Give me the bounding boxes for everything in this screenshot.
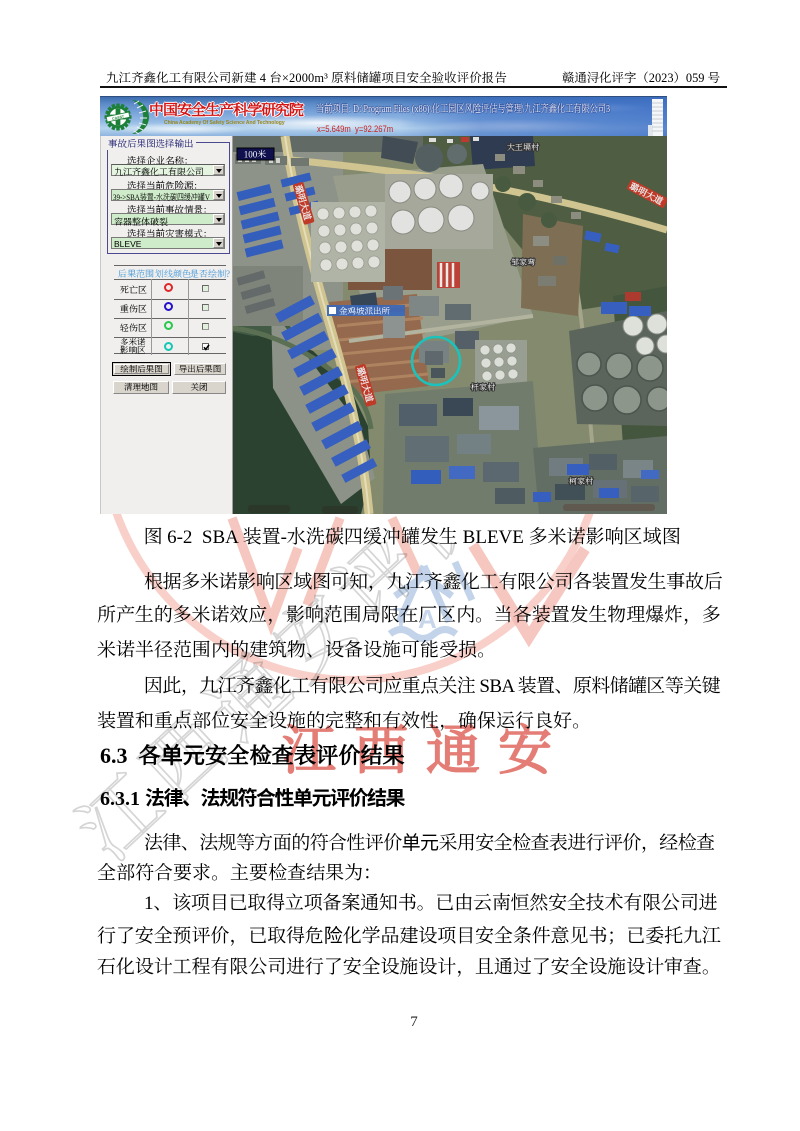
- svg-text:邹家弯: 邹家弯: [511, 257, 535, 268]
- svg-text:柯家村: 柯家村: [569, 476, 594, 487]
- svg-text:大王塥村: 大王塥村: [507, 142, 540, 153]
- svg-text:100米: 100米: [244, 148, 267, 161]
- svg-text:杆家村: 杆家村: [470, 382, 496, 393]
- svg-text:金鸡坡派出所: 金鸡坡派出所: [339, 305, 391, 317]
